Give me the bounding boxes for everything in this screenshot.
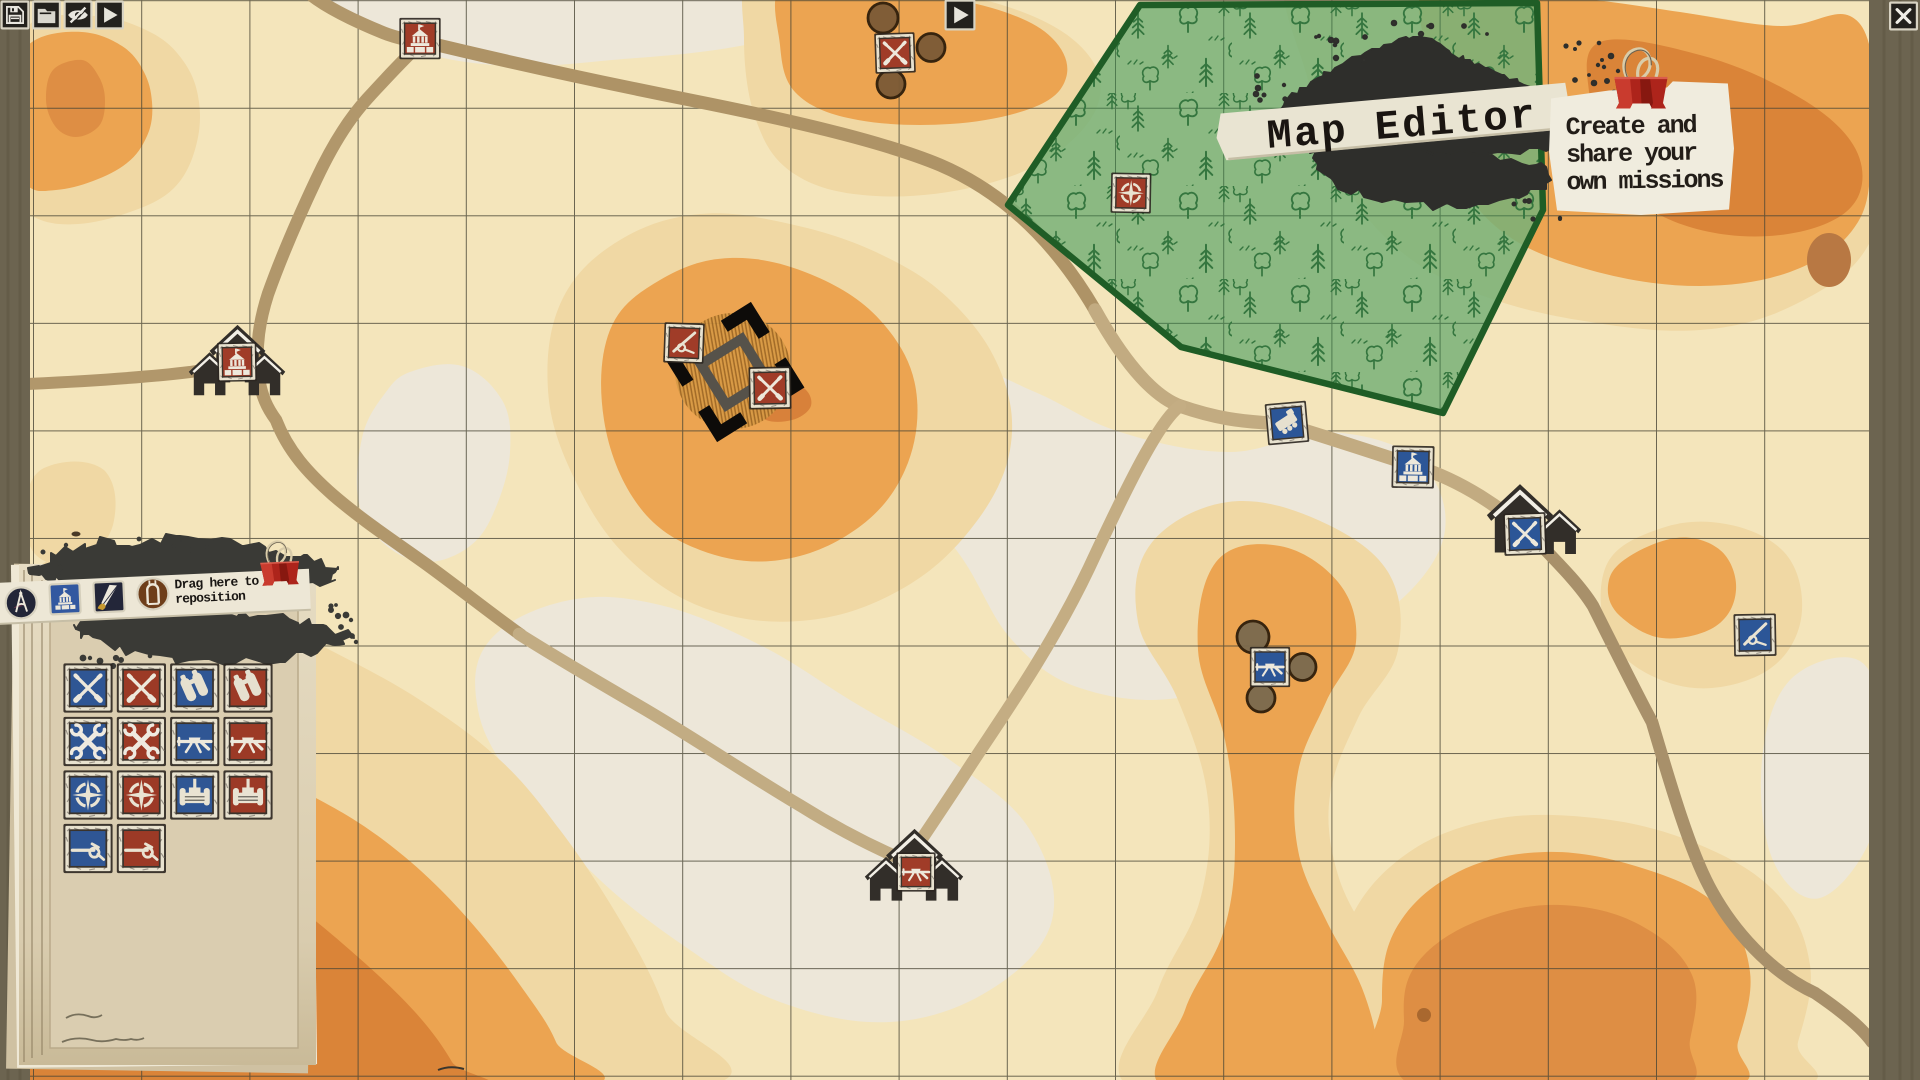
svg-text:Create and: Create and <box>1565 111 1697 142</box>
svg-text:own missions: own missions <box>1566 166 1724 198</box>
svg-text:share your: share your <box>1566 139 1698 170</box>
